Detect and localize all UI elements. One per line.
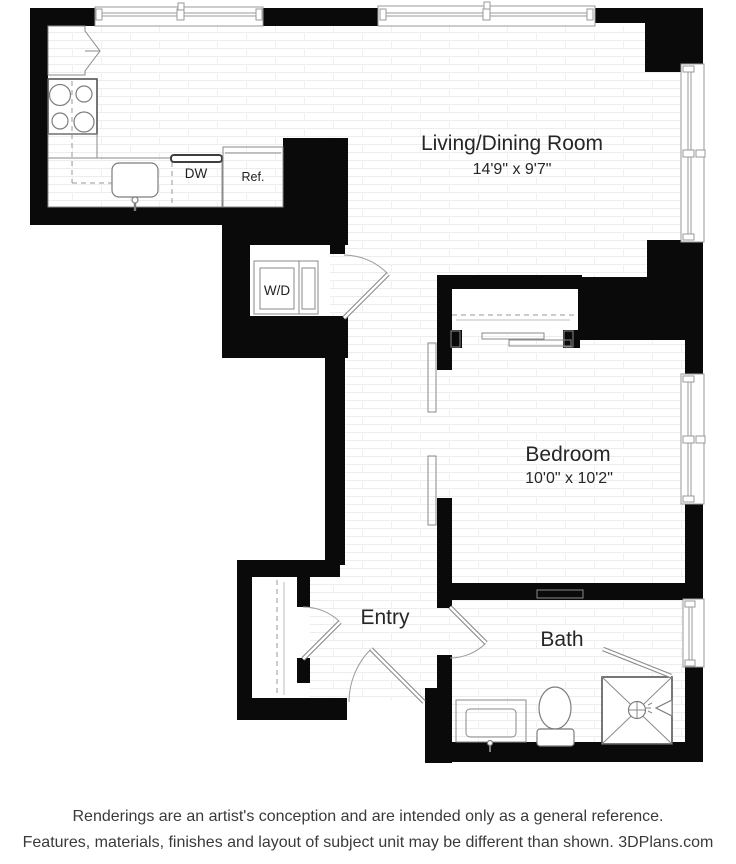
living-right-window xyxy=(681,64,705,242)
kitchen-window xyxy=(95,3,263,26)
bath-label: Bath xyxy=(540,628,583,651)
toilet-icon xyxy=(537,687,574,746)
bedroom-window xyxy=(681,374,705,504)
living-top-window xyxy=(378,2,595,26)
bath-window xyxy=(683,599,704,667)
living-room-dims: 14'9" x 9'7" xyxy=(473,161,552,178)
entry-label: Entry xyxy=(360,606,410,629)
dishwasher-label: DW xyxy=(185,166,208,181)
stove-icon xyxy=(48,79,97,134)
disclaimer-line-2: Features, materials, finishes and layout… xyxy=(0,834,736,852)
living-room-label: Living/Dining Room xyxy=(421,132,603,155)
disclaimer-line-1: Renderings are an artist's conception an… xyxy=(0,808,736,826)
dishwasher-front xyxy=(171,155,222,162)
floorplan-page: DW Ref. W/D xyxy=(0,0,736,864)
refrigerator-label: Ref. xyxy=(242,170,265,184)
entry-threshold xyxy=(347,700,425,720)
floorplan-canvas: DW Ref. W/D xyxy=(0,0,736,790)
shower-icon xyxy=(602,677,672,744)
bedroom-label: Bedroom xyxy=(525,443,610,466)
bedroom-dims: 10'0" x 10'2" xyxy=(525,470,613,487)
washer-dryer-label: W/D xyxy=(264,283,290,298)
